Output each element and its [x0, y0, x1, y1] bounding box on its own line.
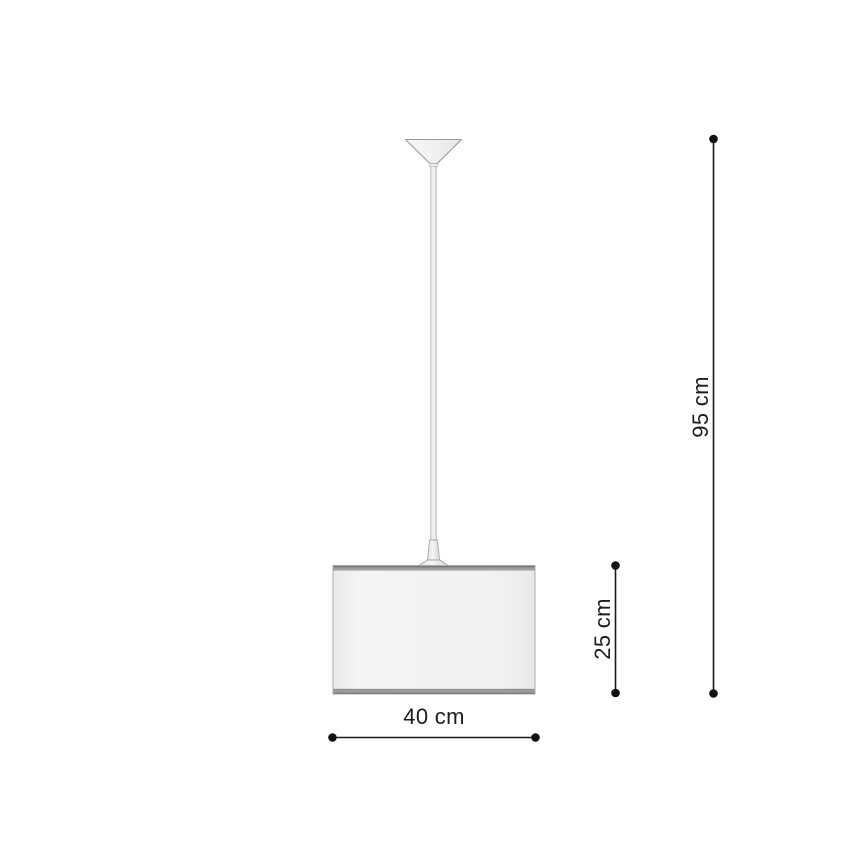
dimension-label-shade-height: 25 cm — [591, 598, 615, 659]
dimension-endpoint-dot — [709, 689, 718, 698]
dimension-label-total-height: 95 cm — [689, 376, 713, 437]
dimension-endpoint-dot — [709, 135, 718, 144]
lampshade — [333, 566, 535, 695]
socket-holder — [427, 540, 439, 560]
dimension-endpoint-dot — [611, 689, 620, 698]
diagram-canvas: 40 cm 25 cm 95 cm — [0, 0, 868, 868]
lampshade-top-band-edge — [334, 566, 535, 567]
canopy — [406, 140, 462, 164]
pendant-lamp — [333, 140, 535, 695]
dimension-label-shade-width: 40 cm — [403, 705, 464, 729]
socket-foot — [419, 560, 449, 566]
dimension-line-shade-width — [328, 733, 540, 742]
lampshade-bottom-band-edge — [334, 693, 535, 694]
dimension-endpoint-dot — [328, 733, 337, 742]
dimension-endpoint-dot — [611, 561, 620, 570]
suspension-cable — [431, 167, 437, 541]
pendant-lamp-drawing — [0, 0, 868, 868]
dimension-endpoint-dot — [531, 733, 540, 742]
